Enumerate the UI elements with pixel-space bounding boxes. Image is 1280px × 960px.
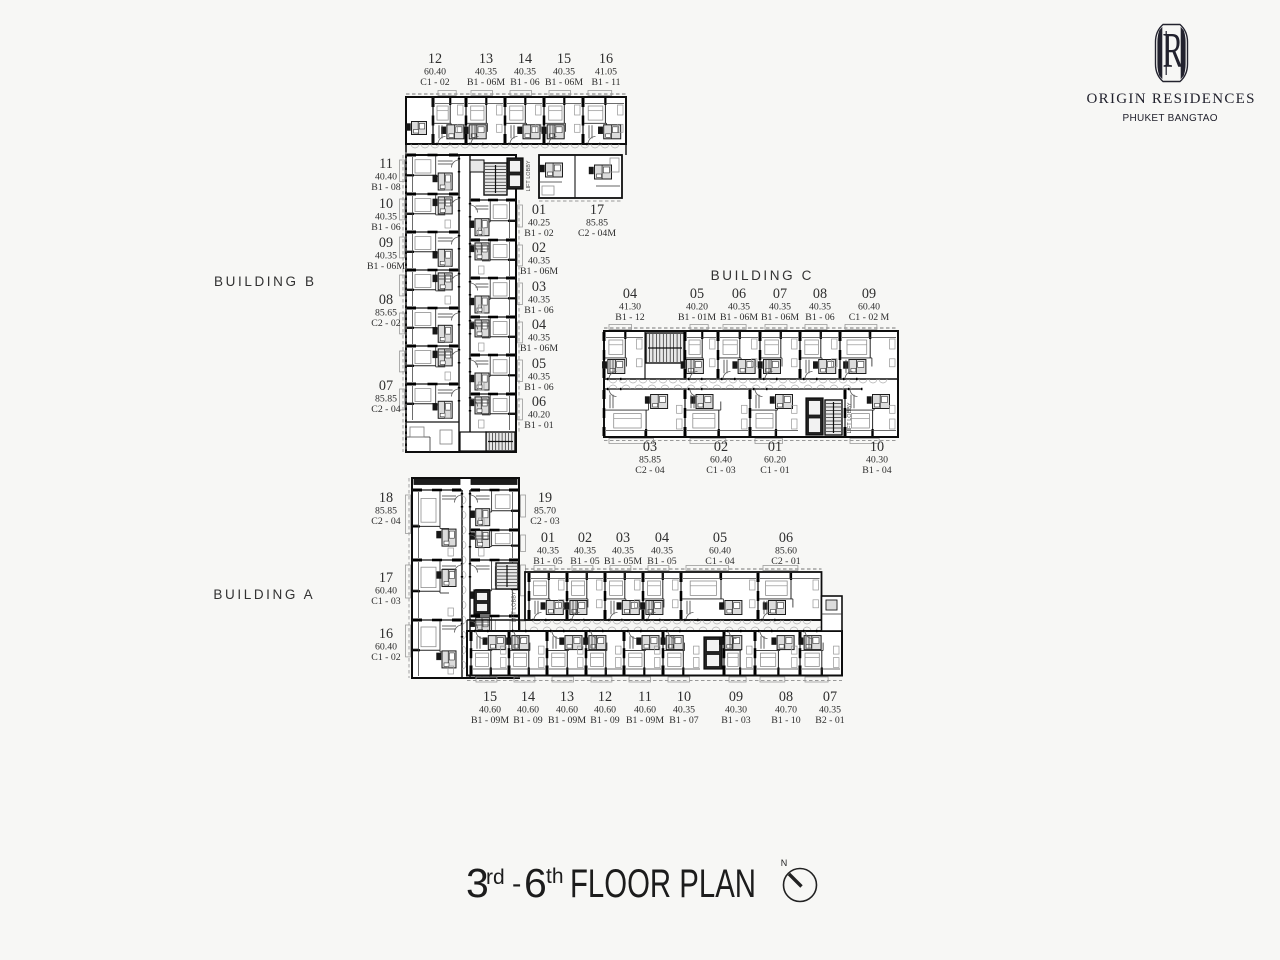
svg-text:12: 12: [428, 51, 442, 67]
svg-text:85.65: 85.65: [375, 308, 397, 319]
svg-text:07: 07: [823, 689, 837, 705]
svg-text:B2 - 01: B2 - 01: [815, 715, 844, 726]
svg-text:B1 - 08: B1 - 08: [371, 182, 400, 193]
svg-text:02: 02: [714, 439, 728, 455]
svg-text:06: 06: [732, 286, 746, 302]
svg-text:40.35: 40.35: [612, 546, 634, 557]
svg-text:07: 07: [773, 286, 787, 302]
svg-text:C1 - 04: C1 - 04: [705, 556, 734, 567]
svg-text:B1 - 04: B1 - 04: [862, 465, 891, 476]
svg-text:06: 06: [779, 530, 793, 546]
svg-text:40.60: 40.60: [479, 705, 501, 716]
svg-text:40.35: 40.35: [528, 333, 550, 344]
svg-text:LIFT LOBBY: LIFT LOBBY: [526, 160, 532, 191]
svg-text:40.70: 40.70: [775, 705, 797, 716]
svg-text:40.35: 40.35: [528, 256, 550, 267]
svg-text:40.40: 40.40: [375, 172, 397, 183]
svg-text:09: 09: [729, 689, 743, 705]
svg-text:B1 - 05M: B1 - 05M: [604, 556, 642, 567]
svg-text:05: 05: [532, 356, 546, 372]
svg-text:B1 - 02: B1 - 02: [524, 228, 553, 239]
svg-text:40.35: 40.35: [673, 705, 695, 716]
svg-text:05: 05: [690, 286, 704, 302]
svg-text:B1 - 05: B1 - 05: [647, 556, 676, 567]
svg-text:B1 - 06M: B1 - 06M: [467, 77, 505, 88]
svg-text:60.40: 60.40: [375, 586, 397, 597]
svg-text:01: 01: [532, 202, 546, 218]
svg-text:40.35: 40.35: [537, 546, 559, 557]
svg-text:rd: rd: [486, 866, 505, 889]
svg-text:02: 02: [532, 240, 546, 256]
svg-text:PHUKET BANGTAO: PHUKET BANGTAO: [1123, 113, 1218, 124]
svg-text:C2 - 04: C2 - 04: [371, 404, 400, 415]
svg-text:B1 - 06M: B1 - 06M: [720, 312, 758, 323]
svg-text:85.85: 85.85: [375, 394, 397, 405]
svg-text:B1 - 06: B1 - 06: [371, 222, 400, 233]
svg-text:11: 11: [379, 156, 393, 172]
svg-text:FLOOR PLAN: FLOOR PLAN: [570, 862, 756, 906]
svg-text:C2 - 04: C2 - 04: [635, 465, 664, 476]
svg-text:60.20: 60.20: [764, 455, 786, 466]
svg-text:N: N: [781, 858, 788, 868]
svg-text:B1 - 09M: B1 - 09M: [471, 715, 509, 726]
svg-text:15: 15: [557, 51, 571, 67]
svg-text:LIFT LOBBY: LIFT LOBBY: [512, 591, 518, 622]
svg-text:40.35: 40.35: [819, 705, 841, 716]
svg-text:B1 - 07: B1 - 07: [669, 715, 698, 726]
svg-text:B1 - 06: B1 - 06: [524, 305, 553, 316]
svg-text:02: 02: [578, 530, 592, 546]
svg-text:40.35: 40.35: [475, 67, 497, 78]
svg-text:BUILDING C: BUILDING C: [711, 268, 814, 283]
svg-text:40.30: 40.30: [725, 705, 747, 716]
svg-text:-: -: [512, 868, 521, 899]
svg-text:B1 - 09: B1 - 09: [590, 715, 619, 726]
svg-text:85.85: 85.85: [586, 218, 608, 229]
svg-text:13: 13: [479, 51, 493, 67]
svg-text:17: 17: [379, 570, 393, 586]
svg-text:16: 16: [379, 626, 393, 642]
svg-text:60.40: 60.40: [709, 546, 731, 557]
svg-text:C1 - 02: C1 - 02: [420, 77, 449, 88]
svg-text:C1 - 02 M: C1 - 02 M: [849, 312, 890, 323]
svg-text:R: R: [1162, 22, 1183, 77]
svg-text:40.60: 40.60: [517, 705, 539, 716]
svg-text:C1 - 03: C1 - 03: [371, 596, 400, 607]
svg-text:C2 - 01: C2 - 01: [771, 556, 800, 567]
svg-text:03: 03: [643, 439, 657, 455]
svg-text:C2 - 02: C2 - 02: [371, 318, 400, 329]
svg-text:B1 - 10: B1 - 10: [771, 715, 800, 726]
svg-text:14: 14: [521, 689, 535, 705]
svg-text:08: 08: [379, 292, 393, 308]
svg-text:10: 10: [870, 439, 884, 455]
svg-text:B1 - 05: B1 - 05: [570, 556, 599, 567]
svg-text:B1 - 06M: B1 - 06M: [520, 266, 558, 277]
svg-text:60.40: 60.40: [710, 455, 732, 466]
svg-text:B1 - 09M: B1 - 09M: [548, 715, 586, 726]
svg-text:06: 06: [532, 394, 546, 410]
svg-text:B1 - 11: B1 - 11: [591, 77, 620, 88]
svg-text:B1 - 06M: B1 - 06M: [367, 261, 405, 272]
svg-text:15: 15: [483, 689, 497, 705]
svg-text:10: 10: [379, 196, 393, 212]
svg-text:41.30: 41.30: [619, 302, 641, 313]
svg-text:40.25: 40.25: [528, 218, 550, 229]
svg-text:60.40: 60.40: [375, 642, 397, 653]
svg-text:40.35: 40.35: [651, 546, 673, 557]
svg-text:40.35: 40.35: [769, 302, 791, 313]
svg-text:05: 05: [713, 530, 727, 546]
svg-text:40.35: 40.35: [375, 251, 397, 262]
svg-text:th: th: [546, 865, 564, 888]
svg-text:40.35: 40.35: [809, 302, 831, 313]
svg-text:14: 14: [518, 51, 532, 67]
svg-text:03: 03: [532, 279, 546, 295]
svg-text:40.60: 40.60: [594, 705, 616, 716]
svg-text:B1 - 12: B1 - 12: [615, 312, 644, 323]
svg-text:ORIGIN RESIDENCES: ORIGIN RESIDENCES: [1087, 91, 1256, 107]
svg-text:40.30: 40.30: [866, 455, 888, 466]
svg-text:17: 17: [590, 202, 604, 218]
svg-text:40.35: 40.35: [528, 295, 550, 306]
svg-text:40.60: 40.60: [556, 705, 578, 716]
svg-text:41.05: 41.05: [595, 67, 617, 78]
svg-text:B1 - 09: B1 - 09: [513, 715, 542, 726]
svg-text:85.85: 85.85: [375, 506, 397, 517]
svg-text:40.60: 40.60: [634, 705, 656, 716]
svg-text:12: 12: [598, 689, 612, 705]
svg-text:85.85: 85.85: [639, 455, 661, 466]
svg-text:04: 04: [532, 317, 546, 333]
svg-text:19: 19: [538, 490, 552, 506]
svg-text:10: 10: [677, 689, 691, 705]
svg-text:B1 - 06M: B1 - 06M: [761, 312, 799, 323]
svg-text:B1 - 01: B1 - 01: [524, 420, 553, 431]
svg-text:08: 08: [813, 286, 827, 302]
svg-text:C1 - 03: C1 - 03: [706, 465, 735, 476]
svg-text:07: 07: [379, 378, 393, 394]
svg-text:85.70: 85.70: [534, 506, 556, 517]
svg-text:LIFT LOBBY: LIFT LOBBY: [847, 402, 853, 433]
svg-text:16: 16: [599, 51, 613, 67]
svg-text:C2 - 04M: C2 - 04M: [578, 228, 616, 239]
svg-text:03: 03: [616, 530, 630, 546]
svg-text:40.35: 40.35: [514, 67, 536, 78]
svg-text:C2 - 03: C2 - 03: [530, 516, 559, 527]
svg-text:40.35: 40.35: [375, 212, 397, 223]
svg-text:04: 04: [623, 286, 637, 302]
svg-text:B1 - 01M: B1 - 01M: [678, 312, 716, 323]
svg-text:B1 - 06: B1 - 06: [805, 312, 834, 323]
svg-text:60.40: 60.40: [858, 302, 880, 313]
svg-text:01: 01: [768, 439, 782, 455]
svg-text:13: 13: [560, 689, 574, 705]
svg-text:04: 04: [655, 530, 669, 546]
svg-text:B1 - 05: B1 - 05: [533, 556, 562, 567]
svg-text:40.35: 40.35: [528, 372, 550, 383]
svg-text:C2 - 04: C2 - 04: [371, 516, 400, 527]
svg-text:40.35: 40.35: [574, 546, 596, 557]
svg-text:B1 - 06: B1 - 06: [510, 77, 539, 88]
svg-text:01: 01: [541, 530, 555, 546]
svg-text:B1 - 06M: B1 - 06M: [545, 77, 583, 88]
svg-text:40.20: 40.20: [686, 302, 708, 313]
svg-text:6: 6: [524, 860, 547, 906]
svg-text:40.35: 40.35: [553, 67, 575, 78]
svg-text:B1 - 06M: B1 - 06M: [520, 343, 558, 354]
svg-text:09: 09: [862, 286, 876, 302]
svg-text:08: 08: [779, 689, 793, 705]
svg-text:18: 18: [379, 490, 393, 506]
svg-text:BUILDING B: BUILDING B: [214, 274, 317, 289]
svg-text:85.60: 85.60: [775, 546, 797, 557]
svg-text:11: 11: [638, 689, 652, 705]
svg-text:C1 - 01: C1 - 01: [760, 465, 789, 476]
svg-text:B1 - 06: B1 - 06: [524, 382, 553, 393]
svg-text:40.20: 40.20: [528, 410, 550, 421]
svg-text:C1 - 02: C1 - 02: [371, 652, 400, 663]
svg-text:B1 - 03: B1 - 03: [721, 715, 750, 726]
svg-text:40.35: 40.35: [728, 302, 750, 313]
svg-text:BUILDING A: BUILDING A: [213, 587, 315, 602]
svg-text:B1 - 09M: B1 - 09M: [626, 715, 664, 726]
svg-text:09: 09: [379, 235, 393, 251]
svg-text:60.40: 60.40: [424, 67, 446, 78]
